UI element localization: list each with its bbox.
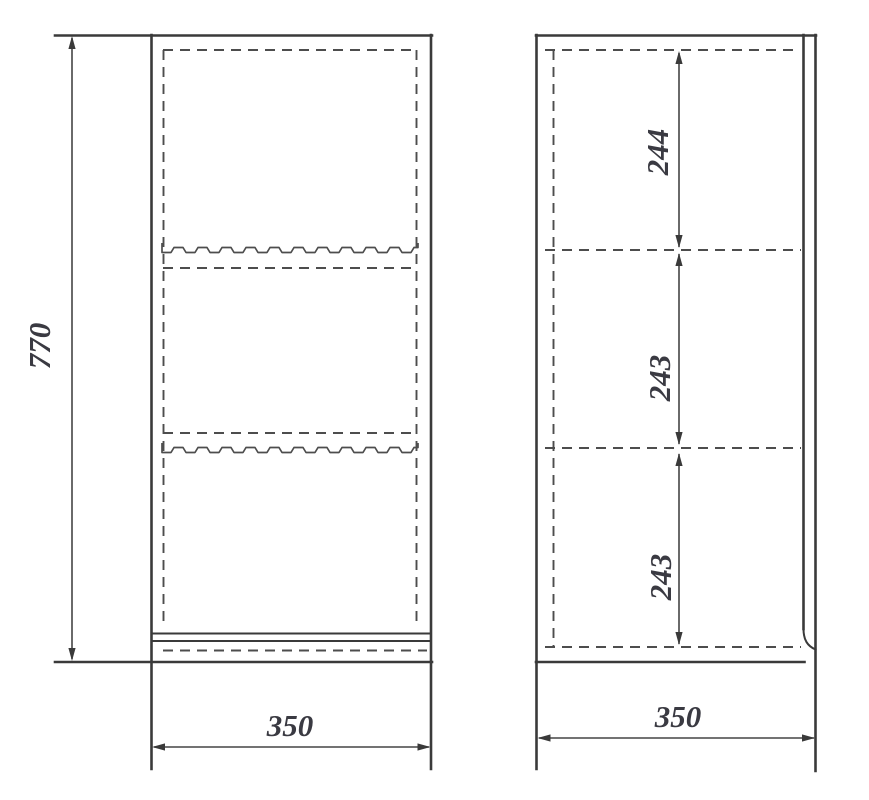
drawing-canvas: 770 350 <box>0 0 869 800</box>
side-view <box>536 35 816 771</box>
front-view-hidden-lines <box>163 50 427 651</box>
dim-section-3-label: 243 <box>643 554 678 602</box>
door-bottom-handle-hook <box>804 629 816 650</box>
dim-arrow-up-icon <box>675 51 682 64</box>
dim-front-height: 770 <box>22 36 75 661</box>
dim-arrow-up-icon <box>675 253 682 266</box>
front-view-outline <box>55 35 432 769</box>
dim-side-depth-label: 350 <box>654 699 702 734</box>
dim-arrow-down-icon <box>675 432 682 445</box>
dim-arrow-down-icon <box>68 648 75 661</box>
front-view-bottom-rail <box>152 634 432 642</box>
front-view <box>55 35 432 769</box>
cabinet-drawing: 770 350 <box>0 0 869 800</box>
dim-arrow-up-icon <box>68 36 75 49</box>
dim-section-2-label: 243 <box>642 355 677 403</box>
dim-front-width-label: 350 <box>266 708 314 743</box>
dim-section-1-label: 244 <box>640 129 675 177</box>
dim-front-height-label: 770 <box>22 323 57 370</box>
dim-arrow-down-icon <box>675 632 682 645</box>
dim-front-width: 350 <box>152 708 431 751</box>
shelf-2-wavy-line <box>162 443 418 453</box>
dim-arrow-left-icon <box>152 743 165 750</box>
dim-arrow-down-icon <box>675 235 682 248</box>
dim-arrow-right-icon <box>802 734 815 741</box>
dim-arrow-right-icon <box>418 743 431 750</box>
shelf-1-wavy-line <box>162 243 418 253</box>
dim-side-depth: 350 <box>538 699 816 742</box>
dim-arrow-up-icon <box>675 453 682 466</box>
front-view-shelf-break-lines <box>162 243 418 453</box>
dim-side-sections: 244 243 243 <box>640 51 682 645</box>
side-view-outline <box>536 35 816 771</box>
dim-arrow-left-icon <box>538 734 551 741</box>
